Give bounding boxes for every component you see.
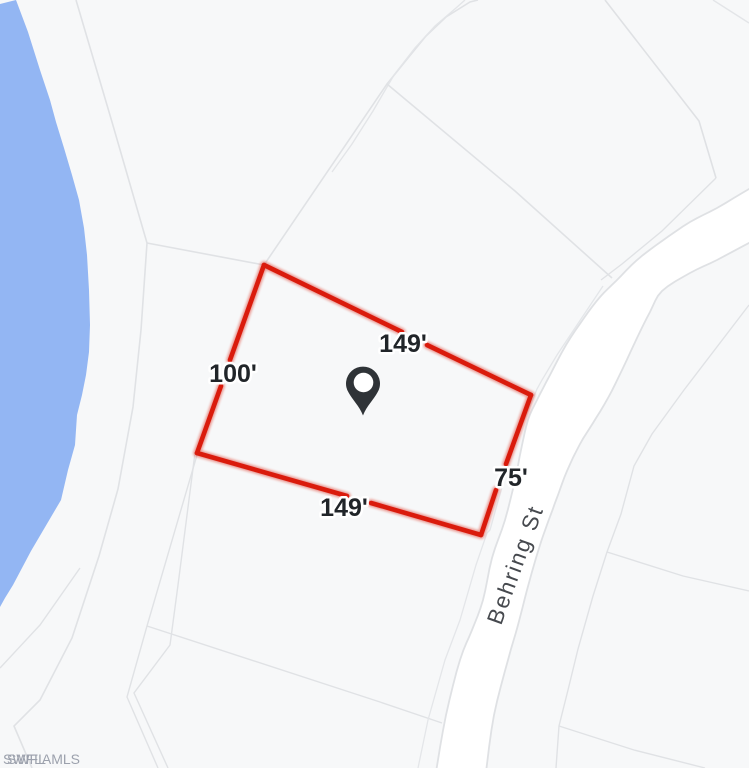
svg-text:SWFL: SWFL <box>7 751 46 767</box>
svg-text:149': 149' <box>320 494 368 522</box>
svg-text:149': 149' <box>379 330 427 358</box>
svg-text:75': 75' <box>494 464 528 492</box>
svg-text:100': 100' <box>209 360 257 388</box>
